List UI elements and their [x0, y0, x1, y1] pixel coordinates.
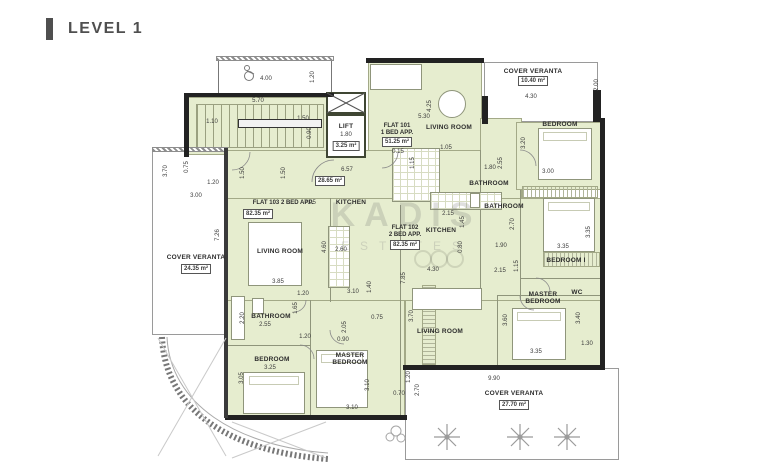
dim-label: 1.20	[207, 180, 219, 186]
dim-label: 3.20	[521, 137, 527, 149]
dim-label: 0.75	[184, 161, 190, 173]
dim-label: 0.15	[392, 149, 404, 155]
area-badge: 82.35 m²	[243, 209, 273, 219]
dim-label: 1.05	[440, 145, 452, 151]
dim-label: 2.15	[442, 211, 454, 217]
page: LEVEL 1	[0, 0, 768, 476]
room-label: BEDROOM I	[546, 258, 585, 264]
dim-label: 3.70	[163, 165, 169, 177]
dim-label: 4.30	[525, 94, 537, 100]
flat-title: 2 BED APP.	[389, 232, 421, 238]
room-label: LIFT	[339, 124, 354, 130]
dim-label: 1.20	[406, 371, 412, 383]
dim-label: 2.70	[510, 218, 516, 230]
dim-label: 0.75	[371, 315, 383, 321]
dim-label: 3.00	[542, 169, 554, 175]
room-label: LIVING ROOM	[417, 329, 463, 335]
dim-label: 3.05	[239, 372, 245, 384]
dim-label: 1.80	[340, 132, 352, 138]
area-badge: 27.70 m²	[499, 400, 529, 410]
dim-label: 9.90	[488, 376, 500, 382]
floor-plan: KADIS ESTATES 4.001.205.701.101.500.900.…	[0, 0, 768, 476]
dim-label: 1.20	[297, 291, 309, 297]
room-label: LIVING ROOM	[426, 125, 472, 131]
dim-label: 1.10	[206, 119, 218, 125]
dim-label: 1.15	[514, 260, 520, 272]
dim-label: 1.45	[460, 216, 466, 228]
room-label: COVER VERANTA	[504, 69, 562, 75]
dim-label: 5.30	[418, 114, 430, 120]
dim-label: 3.60	[503, 314, 509, 326]
dim-label: 3.10	[347, 289, 359, 295]
dim-label: 3.35	[586, 226, 592, 238]
room-label: BATHROOM	[484, 204, 523, 210]
dim-label: 2.55	[259, 322, 271, 328]
dim-label: 7.85	[401, 272, 407, 284]
labels-layer: 4.001.205.701.101.500.900.753.701.501.50…	[0, 0, 768, 476]
dim-label: 2.05	[342, 321, 348, 333]
dim-label: 1.90	[495, 243, 507, 249]
room-label: BEDROOM	[254, 357, 289, 363]
dim-label: 1.20	[310, 71, 316, 83]
dim-label: 2.55	[498, 157, 504, 169]
dim-label: 3.85	[272, 279, 284, 285]
dim-label: 3.70	[409, 310, 415, 322]
area-badge: 82.35 m²	[390, 240, 420, 250]
dim-label: 2.15	[494, 268, 506, 274]
dim-label: 3.10	[365, 379, 371, 391]
flat-title: FLAT 101	[384, 123, 411, 129]
room-label: WC	[571, 290, 582, 296]
dim-label: 1.65	[293, 302, 299, 314]
room-label: BATHROOM	[469, 181, 508, 187]
dim-label: 7.05	[304, 200, 316, 206]
area-badge: 51.25 m²	[382, 137, 412, 147]
room-label: BEDROOM	[332, 360, 367, 366]
dim-label: 7.26	[215, 229, 221, 241]
dim-label: 4.30	[427, 267, 439, 273]
dim-label: 3.35	[530, 349, 542, 355]
dim-label: 4.60	[322, 241, 328, 253]
room-label: BEDROOM	[542, 122, 577, 128]
room-label: COVER VERANTA	[485, 391, 543, 397]
dim-label: 0.90	[337, 337, 349, 343]
dim-label: 1.80	[484, 165, 496, 171]
room-label: KITCHEN	[426, 228, 456, 234]
dim-label: 3.10	[346, 405, 358, 411]
dim-label: 0.90	[307, 127, 313, 139]
dim-label: 4.00	[260, 76, 272, 82]
room-label: LIVING ROOM	[257, 249, 303, 255]
dim-label: 5.70	[252, 98, 264, 104]
area-badge: 10.40 m²	[518, 76, 548, 86]
area-badge: 24.35 m²	[181, 264, 211, 274]
dim-label: 3.00	[190, 193, 202, 199]
dim-label: 0.80	[458, 241, 464, 253]
flat-title: FLAT 102	[392, 225, 419, 231]
flat-title: 1 BED APP.	[381, 130, 413, 136]
dim-label: 1.50	[281, 167, 287, 179]
dim-label: 2.60	[335, 247, 347, 253]
dim-label: 1.50	[297, 116, 309, 122]
room-label: KITCHEN	[336, 200, 366, 206]
dim-label: 1.40	[367, 281, 373, 293]
room-label: BEDROOM	[525, 299, 560, 305]
dim-label: 2.20	[240, 312, 246, 324]
dim-label: 0.70	[393, 391, 405, 397]
room-label: COVER VERANTA	[167, 255, 225, 261]
dim-label: 1.30	[581, 341, 593, 347]
room-label: BATHROOM	[251, 314, 290, 320]
dim-label: 1.50	[240, 167, 246, 179]
dim-label: 2.00	[594, 79, 600, 91]
dim-label: 1.15	[410, 157, 416, 169]
dim-label: 3.35	[557, 244, 569, 250]
area-badge: 28.65 m²	[315, 176, 345, 186]
dim-label: 2.70	[415, 384, 421, 396]
dim-label: 3.40	[576, 312, 582, 324]
dim-label: 6.57	[341, 167, 353, 173]
dim-label: 3.25	[264, 365, 276, 371]
dim-label: 1.20	[299, 334, 311, 340]
area-badge: 3.25 m²	[333, 141, 360, 151]
dim-label: 4.25	[427, 100, 433, 112]
